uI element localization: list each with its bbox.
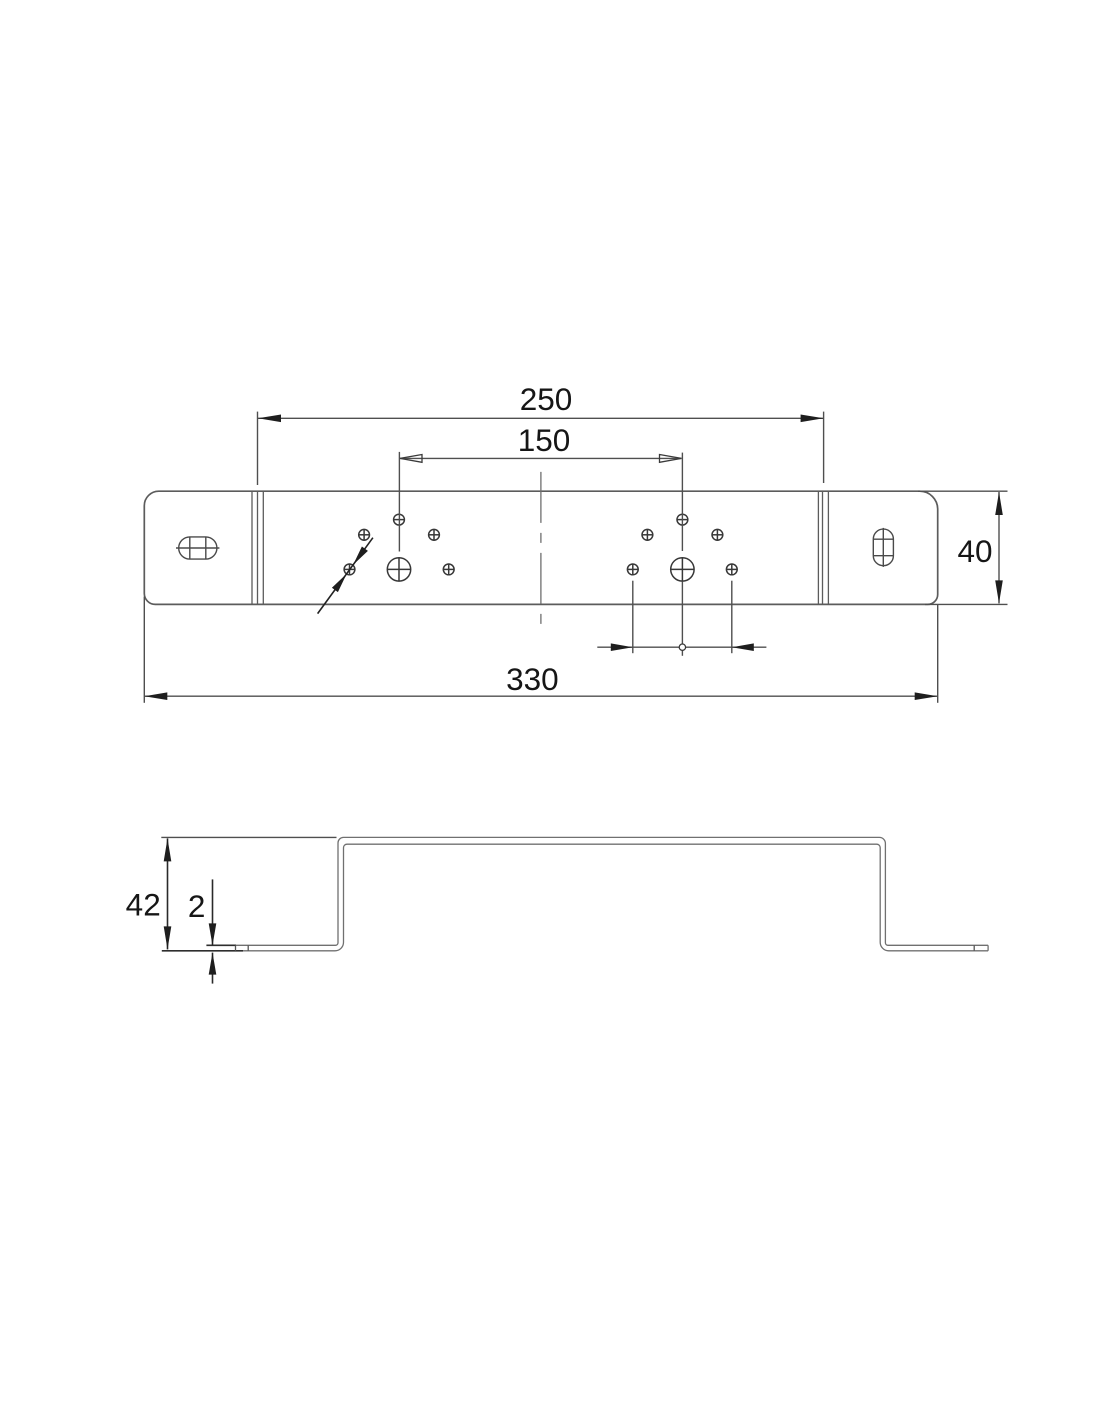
svg-text:42: 42 [126,886,161,922]
svg-text:330: 330 [506,661,559,697]
svg-text:40: 40 [957,533,992,569]
svg-text:150: 150 [518,422,571,458]
svg-text:250: 250 [520,381,573,417]
svg-text:2: 2 [188,888,206,924]
